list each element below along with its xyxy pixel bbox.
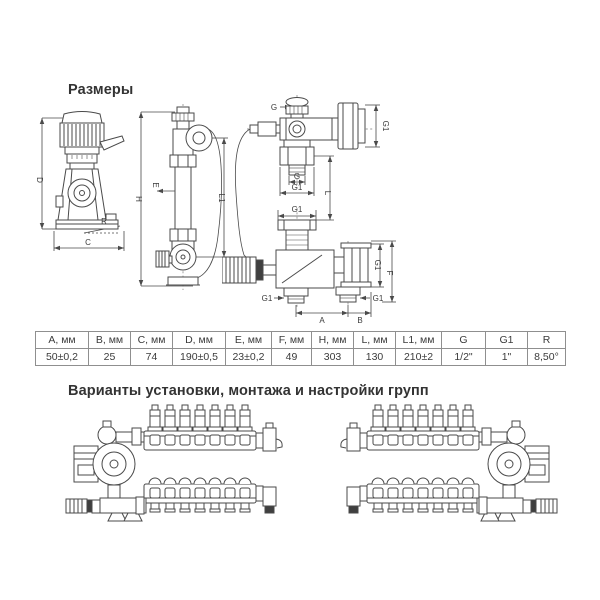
table-header-cell: R xyxy=(528,332,566,349)
table-header-cell: L1, мм xyxy=(396,332,442,349)
table-header-cell: H, мм xyxy=(312,332,354,349)
dim-label-g1-side: G1 xyxy=(373,260,382,271)
table-value-cell: 49 xyxy=(272,349,312,366)
datasheet-page: Размеры xyxy=(0,0,600,600)
dimensions-table: A, мм B, мм C, мм D, мм E, мм F, мм H, м… xyxy=(35,331,566,366)
table-value-cell: 1/2" xyxy=(442,349,486,366)
dim-label-g1-left: G1 xyxy=(262,294,273,303)
dim-label-g1-union: G1 xyxy=(292,183,303,192)
manifold-left-pump-drawing xyxy=(62,402,307,537)
table-value-cell: 190±0,5 xyxy=(173,349,226,366)
table-header-cell: L, мм xyxy=(354,332,396,349)
dim-label-f: F xyxy=(385,271,394,276)
table-value-cell: 130 xyxy=(354,349,396,366)
table-header-row: A, мм B, мм C, мм D, мм E, мм F, мм H, м… xyxy=(36,332,566,349)
table-header-cell: E, мм xyxy=(226,332,272,349)
table-header-cell: G xyxy=(442,332,486,349)
dim-label-g-top: G xyxy=(271,103,277,112)
port-and-valve-view-drawing: G G1 G G1 L G1 G1 F G1 G1 A B xyxy=(222,93,397,325)
table-value-cell: 23±0,2 xyxy=(226,349,272,366)
table-value-cell: 303 xyxy=(312,349,354,366)
table-value-cell: 74 xyxy=(131,349,173,366)
dim-label-r: R xyxy=(101,217,107,226)
table-value-cell: 1" xyxy=(486,349,528,366)
table-value-cell: 8,50° xyxy=(528,349,566,366)
dim-label-c: C xyxy=(85,238,91,247)
dim-label-h: H xyxy=(134,196,143,202)
table-header-cell: G1 xyxy=(486,332,528,349)
dim-label-b: B xyxy=(357,316,362,325)
variants-section-title: Варианты установки, монтажа и настройки … xyxy=(68,383,429,399)
table-header-cell: C, мм xyxy=(131,332,173,349)
table-value-cell: 210±2 xyxy=(396,349,442,366)
table-value-cell: 50±0,2 xyxy=(36,349,89,366)
table-value-row: 50±0,2 25 74 190±0,5 23±0,2 49 303 130 2… xyxy=(36,349,566,366)
dim-label-g-thread: G xyxy=(294,172,300,181)
manifold-right-pump-drawing xyxy=(316,402,561,537)
dim-label-g1-top: G1 xyxy=(292,205,303,214)
table-header-cell: D, мм xyxy=(173,332,226,349)
dim-label-e: E xyxy=(151,182,160,187)
table-header-cell: F, мм xyxy=(272,332,312,349)
table-value-cell: 25 xyxy=(89,349,131,366)
table-header-cell: A, мм xyxy=(36,332,89,349)
dim-label-l: L xyxy=(323,191,332,196)
table-header-cell: B, мм xyxy=(89,332,131,349)
dim-label-a: A xyxy=(319,316,325,325)
side-view-drawing: D R C xyxy=(32,100,137,262)
dim-label-g1-flange: G1 xyxy=(381,121,390,132)
dim-label-g1-right: G1 xyxy=(373,294,384,303)
dimensions-section-title: Размеры xyxy=(68,82,133,98)
dim-label-d: D xyxy=(35,177,44,183)
